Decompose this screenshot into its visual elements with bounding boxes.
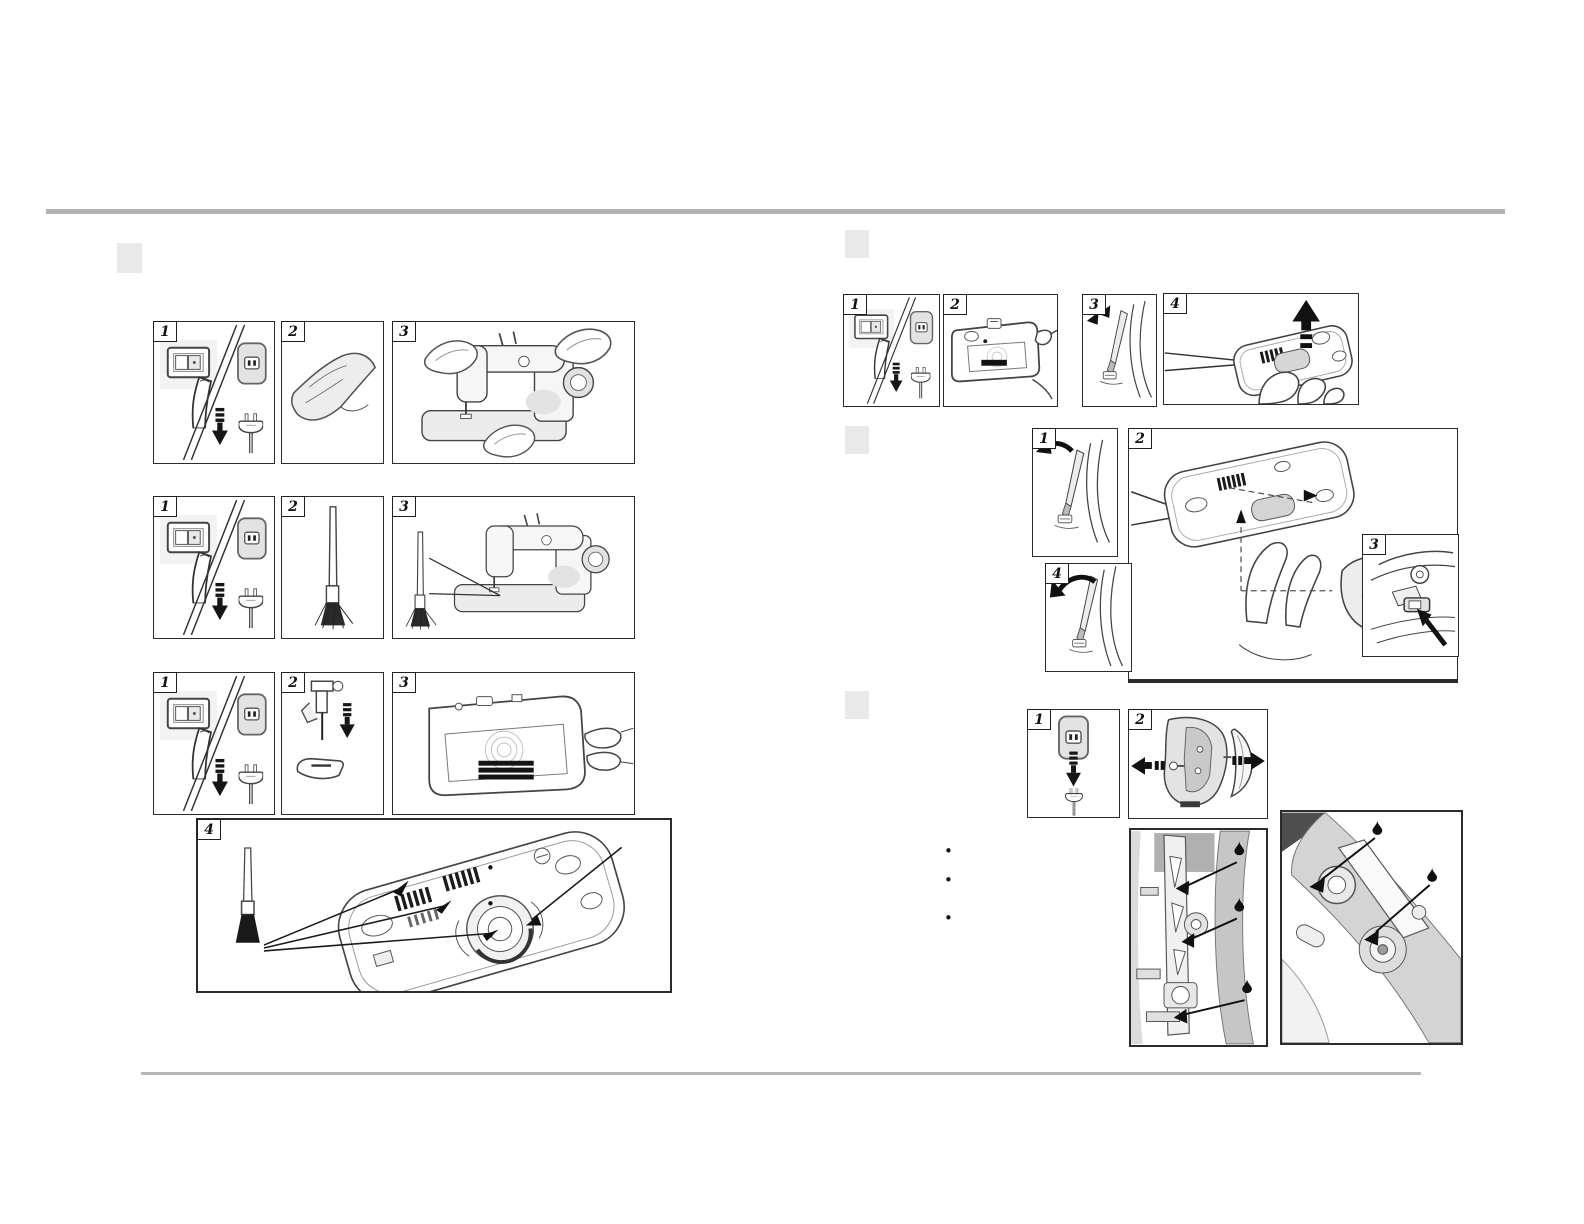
step-panel: 1 [153, 321, 275, 464]
soft-cloth-icon [282, 322, 383, 463]
step-panel: 2 [943, 294, 1058, 407]
step-panel: 3 [392, 496, 635, 639]
step-number: 1 [1032, 428, 1056, 449]
step-panel: 1 [1027, 709, 1120, 818]
step-number: 1 [153, 672, 177, 693]
wipe-machine-with-cloth-pads-icon [393, 322, 634, 463]
step-number: 3 [392, 321, 416, 342]
step-number: 1 [153, 496, 177, 517]
step-number: 1 [843, 294, 867, 315]
step-number: 2 [281, 321, 305, 342]
oil-points-panel-left [1129, 828, 1268, 1047]
step-number: 2 [281, 496, 305, 517]
bullet: • [486, 897, 495, 912]
step-panel: 3 [392, 672, 635, 815]
step-number: 2 [1128, 709, 1152, 730]
bullet: • [486, 929, 495, 944]
remove-needle-plate-by-hand-icon [393, 673, 634, 814]
step-number: 2 [943, 294, 967, 315]
step-panel: 2 [281, 496, 384, 639]
step-number: 2 [281, 672, 305, 693]
step-panel: 1 [843, 294, 940, 407]
step-number: 1 [153, 321, 177, 342]
step-number: 3 [1362, 534, 1386, 555]
section-marker-right-3 [845, 691, 869, 719]
brush-feed-dogs-and-hook-race-icon [198, 820, 670, 991]
bottom-rule [141, 1072, 1421, 1075]
manual-page: 1 2 3 1 [0, 0, 1584, 1224]
step-number: 4 [1163, 293, 1187, 314]
step-number: 1 [1027, 709, 1051, 730]
step-number: 4 [1045, 563, 1069, 584]
section-marker-right-1 [845, 230, 869, 258]
step-number: 3 [392, 496, 416, 517]
step-panel: 3 [1082, 294, 1157, 407]
step-number: 3 [392, 672, 416, 693]
step-number: 2 [1128, 428, 1152, 449]
brush-machine-exterior-icon [393, 497, 634, 638]
step-panel: 2 [281, 672, 384, 815]
step-number: 4 [197, 819, 221, 840]
oiling-points-crank-icon [1282, 812, 1461, 1043]
section-marker-left [117, 243, 142, 273]
step-panel: 4 [1045, 563, 1132, 672]
detail-panel: 4 [196, 818, 672, 993]
oil-points-panel-right [1280, 810, 1463, 1045]
step-panel: 1 [153, 672, 275, 815]
section-marker-right-2 [845, 426, 869, 454]
bullet: • [944, 911, 953, 926]
top-rule [46, 209, 1505, 214]
step-panel: 4 [1163, 293, 1359, 405]
bullet: • [486, 861, 495, 876]
oiling-points-needle-bar-icon [1131, 830, 1266, 1045]
bullet: • [944, 844, 953, 859]
power-off-and-unplug-icon [154, 673, 274, 814]
lift-needle-plate-up-icon [1164, 294, 1358, 404]
step-panel: 2 [1128, 709, 1268, 819]
step-number: 3 [1082, 294, 1106, 315]
step-panel: 1 [1032, 428, 1118, 557]
power-off-and-unplug-icon [154, 322, 274, 463]
power-off-and-unplug-icon [154, 497, 274, 638]
step-panel: 2 [281, 321, 384, 464]
step-panel: 3 [392, 321, 635, 464]
remove-presser-foot-and-needle-icon [282, 673, 383, 814]
bullet: • [944, 873, 953, 888]
step-panel: 1 [153, 496, 275, 639]
step-panel: 3 [1362, 534, 1459, 657]
lint-brush-icon [282, 497, 383, 638]
